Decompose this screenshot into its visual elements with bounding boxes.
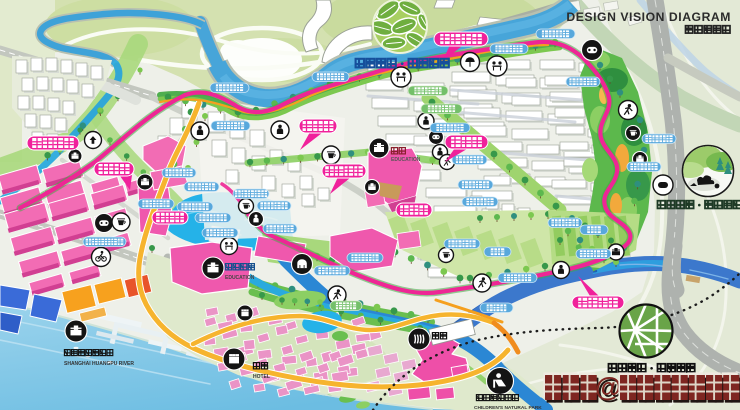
svg-text:CHILDREN'S NATURAL PARK: CHILDREN'S NATURAL PARK xyxy=(474,405,542,410)
svg-text:SHANGHAI HUANGPU RIVER: SHANGHAI HUANGPU RIVER xyxy=(64,361,134,367)
svg-text:@: @ xyxy=(595,372,621,402)
svg-text:EDUCATION: EDUCATION xyxy=(391,157,421,163)
svg-text:HOTEL: HOTEL xyxy=(253,374,270,380)
svg-text:DESIGN VISION DIAGRAM: DESIGN VISION DIAGRAM xyxy=(566,10,731,24)
svg-text:EDUCATION: EDUCATION xyxy=(225,275,255,281)
